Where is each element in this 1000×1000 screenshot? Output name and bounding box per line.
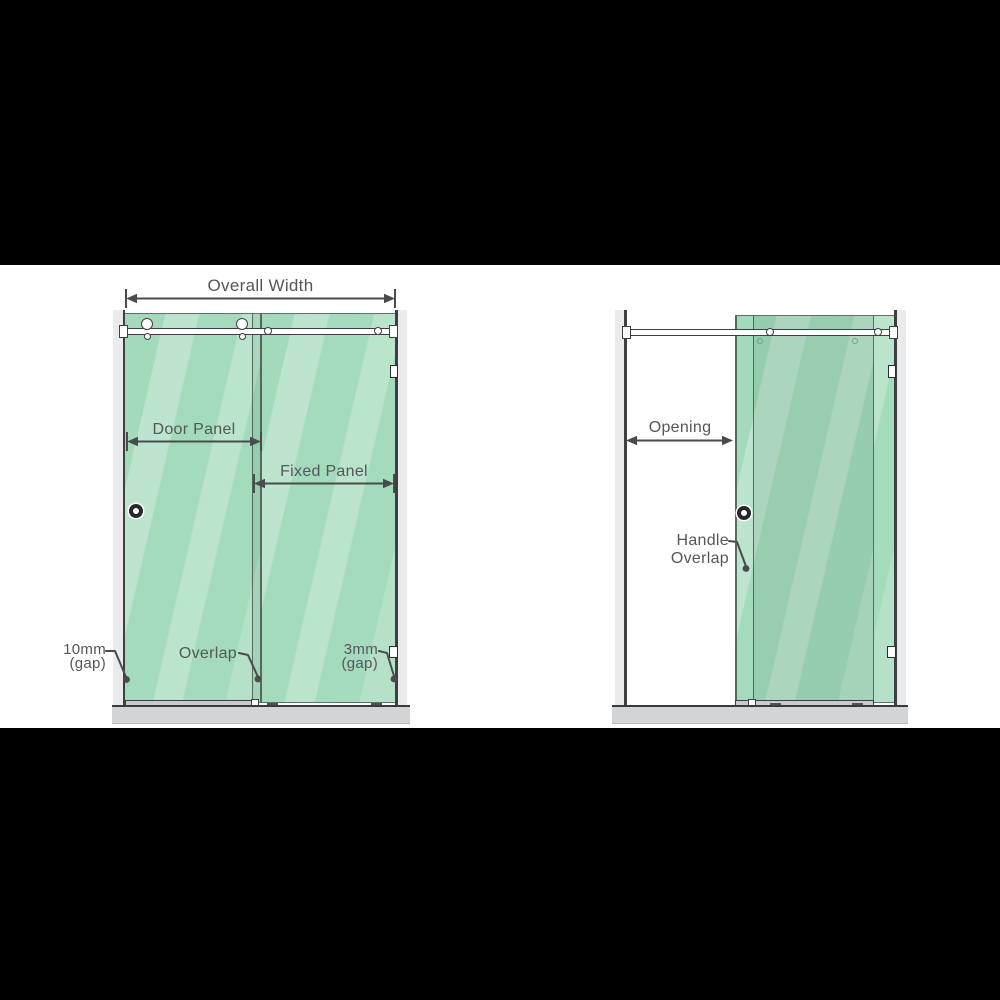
left-diagram-rail-clamp-icon	[374, 327, 382, 335]
right-diagram-rail-clamp-icon	[874, 328, 882, 336]
right-diagram-ghost-roller-stop-icon	[852, 338, 858, 344]
left-diagram-rail-cap-left	[119, 325, 128, 338]
left-diagram-roller-stop-icon	[144, 333, 151, 340]
right-diagram-top-rail	[627, 329, 894, 336]
door-panel-label: Door Panel	[127, 421, 261, 439]
handle-overlap-label: Handle Overlap	[653, 532, 729, 568]
gap-3mm-label: 3mm (gap)	[322, 643, 378, 671]
gap-10mm-label: 10mm (gap)	[48, 643, 106, 671]
right-diagram-wall-bracket-top	[888, 365, 896, 378]
opening-label: Opening	[627, 419, 733, 437]
right-diagram-fixed-panel-edge-line	[753, 316, 755, 702]
left-diagram-roller-icon	[141, 318, 153, 330]
handle-overlap-label-line2: Overlap	[653, 550, 729, 568]
left-diagram-roller-stop-icon	[239, 333, 246, 340]
right-diagram-door-panel-edge-line	[873, 316, 875, 702]
right-diagram-floor-base	[612, 705, 908, 724]
left-diagram-door-panel-edge-line	[260, 314, 262, 702]
left-diagram-fixed-panel-edge-line	[252, 314, 254, 702]
left-diagram-roller-icon	[236, 318, 248, 330]
overlap-label: Overlap	[163, 645, 237, 663]
left-diagram-rail-clamp-icon	[264, 327, 272, 335]
gap-10mm-label-line2: (gap)	[48, 657, 106, 671]
gap-3mm-label-line2: (gap)	[322, 657, 378, 671]
handle-overlap-label-line1: Handle	[653, 532, 729, 550]
right-diagram-wall-line-left	[624, 310, 627, 706]
left-diagram-rail-cap-right	[389, 325, 398, 338]
left-diagram-wall-bracket-top	[390, 365, 398, 378]
overall-width-label: Overall Width	[126, 277, 395, 295]
right-diagram-door-leading-edge-line	[735, 316, 737, 702]
right-diagram-rail-cap-left	[622, 326, 631, 339]
left-diagram-floor-base	[112, 705, 410, 724]
right-diagram-panel-overlap-shade	[753, 316, 873, 702]
screenshot-stage: Overall Width Door Panel Fixed Panel 10m…	[0, 0, 1000, 1000]
right-diagram-wall-bracket-bottom	[887, 646, 896, 658]
left-diagram-wall-bracket-bottom	[389, 646, 398, 658]
left-diagram-top-rail	[124, 328, 396, 335]
right-diagram-ghost-roller-stop-icon	[757, 338, 763, 344]
right-diagram-wall-right	[895, 310, 906, 707]
right-diagram-rail-clamp-icon	[766, 328, 774, 336]
right-diagram-door-handle-knob-icon	[737, 506, 751, 520]
fixed-panel-label: Fixed Panel	[254, 463, 394, 481]
right-diagram-rail-cap-right	[889, 326, 898, 339]
left-diagram-door-handle-knob-icon	[129, 504, 143, 518]
left-diagram-wall-line-left	[123, 310, 126, 706]
